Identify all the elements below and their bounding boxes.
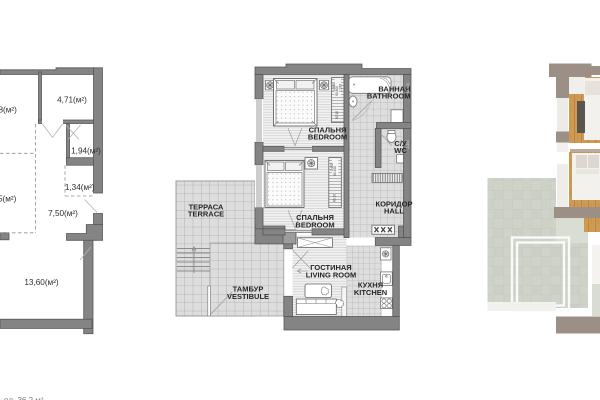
svg-text:LIVING ROOM: LIVING ROOM xyxy=(306,270,356,279)
svg-text:13,60(м²): 13,60(м²) xyxy=(24,278,59,287)
svg-text:BATHROOM: BATHROOM xyxy=(367,91,411,100)
svg-text:4,71(м²): 4,71(м²) xyxy=(57,96,87,105)
svg-text:пл. 36,2 м²: пл. 36,2 м² xyxy=(4,396,44,400)
svg-text:HALL: HALL xyxy=(384,207,404,216)
svg-text:1,34(м²): 1,34(м²) xyxy=(65,183,95,192)
svg-text:8(м²): 8(м²) xyxy=(0,106,17,115)
svg-text:TERRACE: TERRACE xyxy=(188,210,224,219)
svg-text:1,94(м²): 1,94(м²) xyxy=(71,147,101,156)
svg-text:KITCHEN: KITCHEN xyxy=(354,288,387,297)
svg-text:11.600: 11.600 xyxy=(406,83,410,93)
svg-text:VESTIBULE: VESTIBULE xyxy=(227,292,269,301)
svg-text:7,50(м²): 7,50(м²) xyxy=(48,209,78,218)
svg-text:5(м²): 5(м²) xyxy=(0,194,17,203)
svg-text:60.10: 60.10 xyxy=(335,111,339,119)
svg-text:60.10: 60.10 xyxy=(333,194,337,202)
svg-text:1.938: 1.938 xyxy=(338,84,342,92)
svg-text:BEDROOM: BEDROOM xyxy=(295,220,334,229)
svg-text:BEDROOM: BEDROOM xyxy=(308,133,347,142)
svg-text:2.200: 2.200 xyxy=(406,140,410,149)
svg-text:80.400: 80.400 xyxy=(333,166,337,176)
